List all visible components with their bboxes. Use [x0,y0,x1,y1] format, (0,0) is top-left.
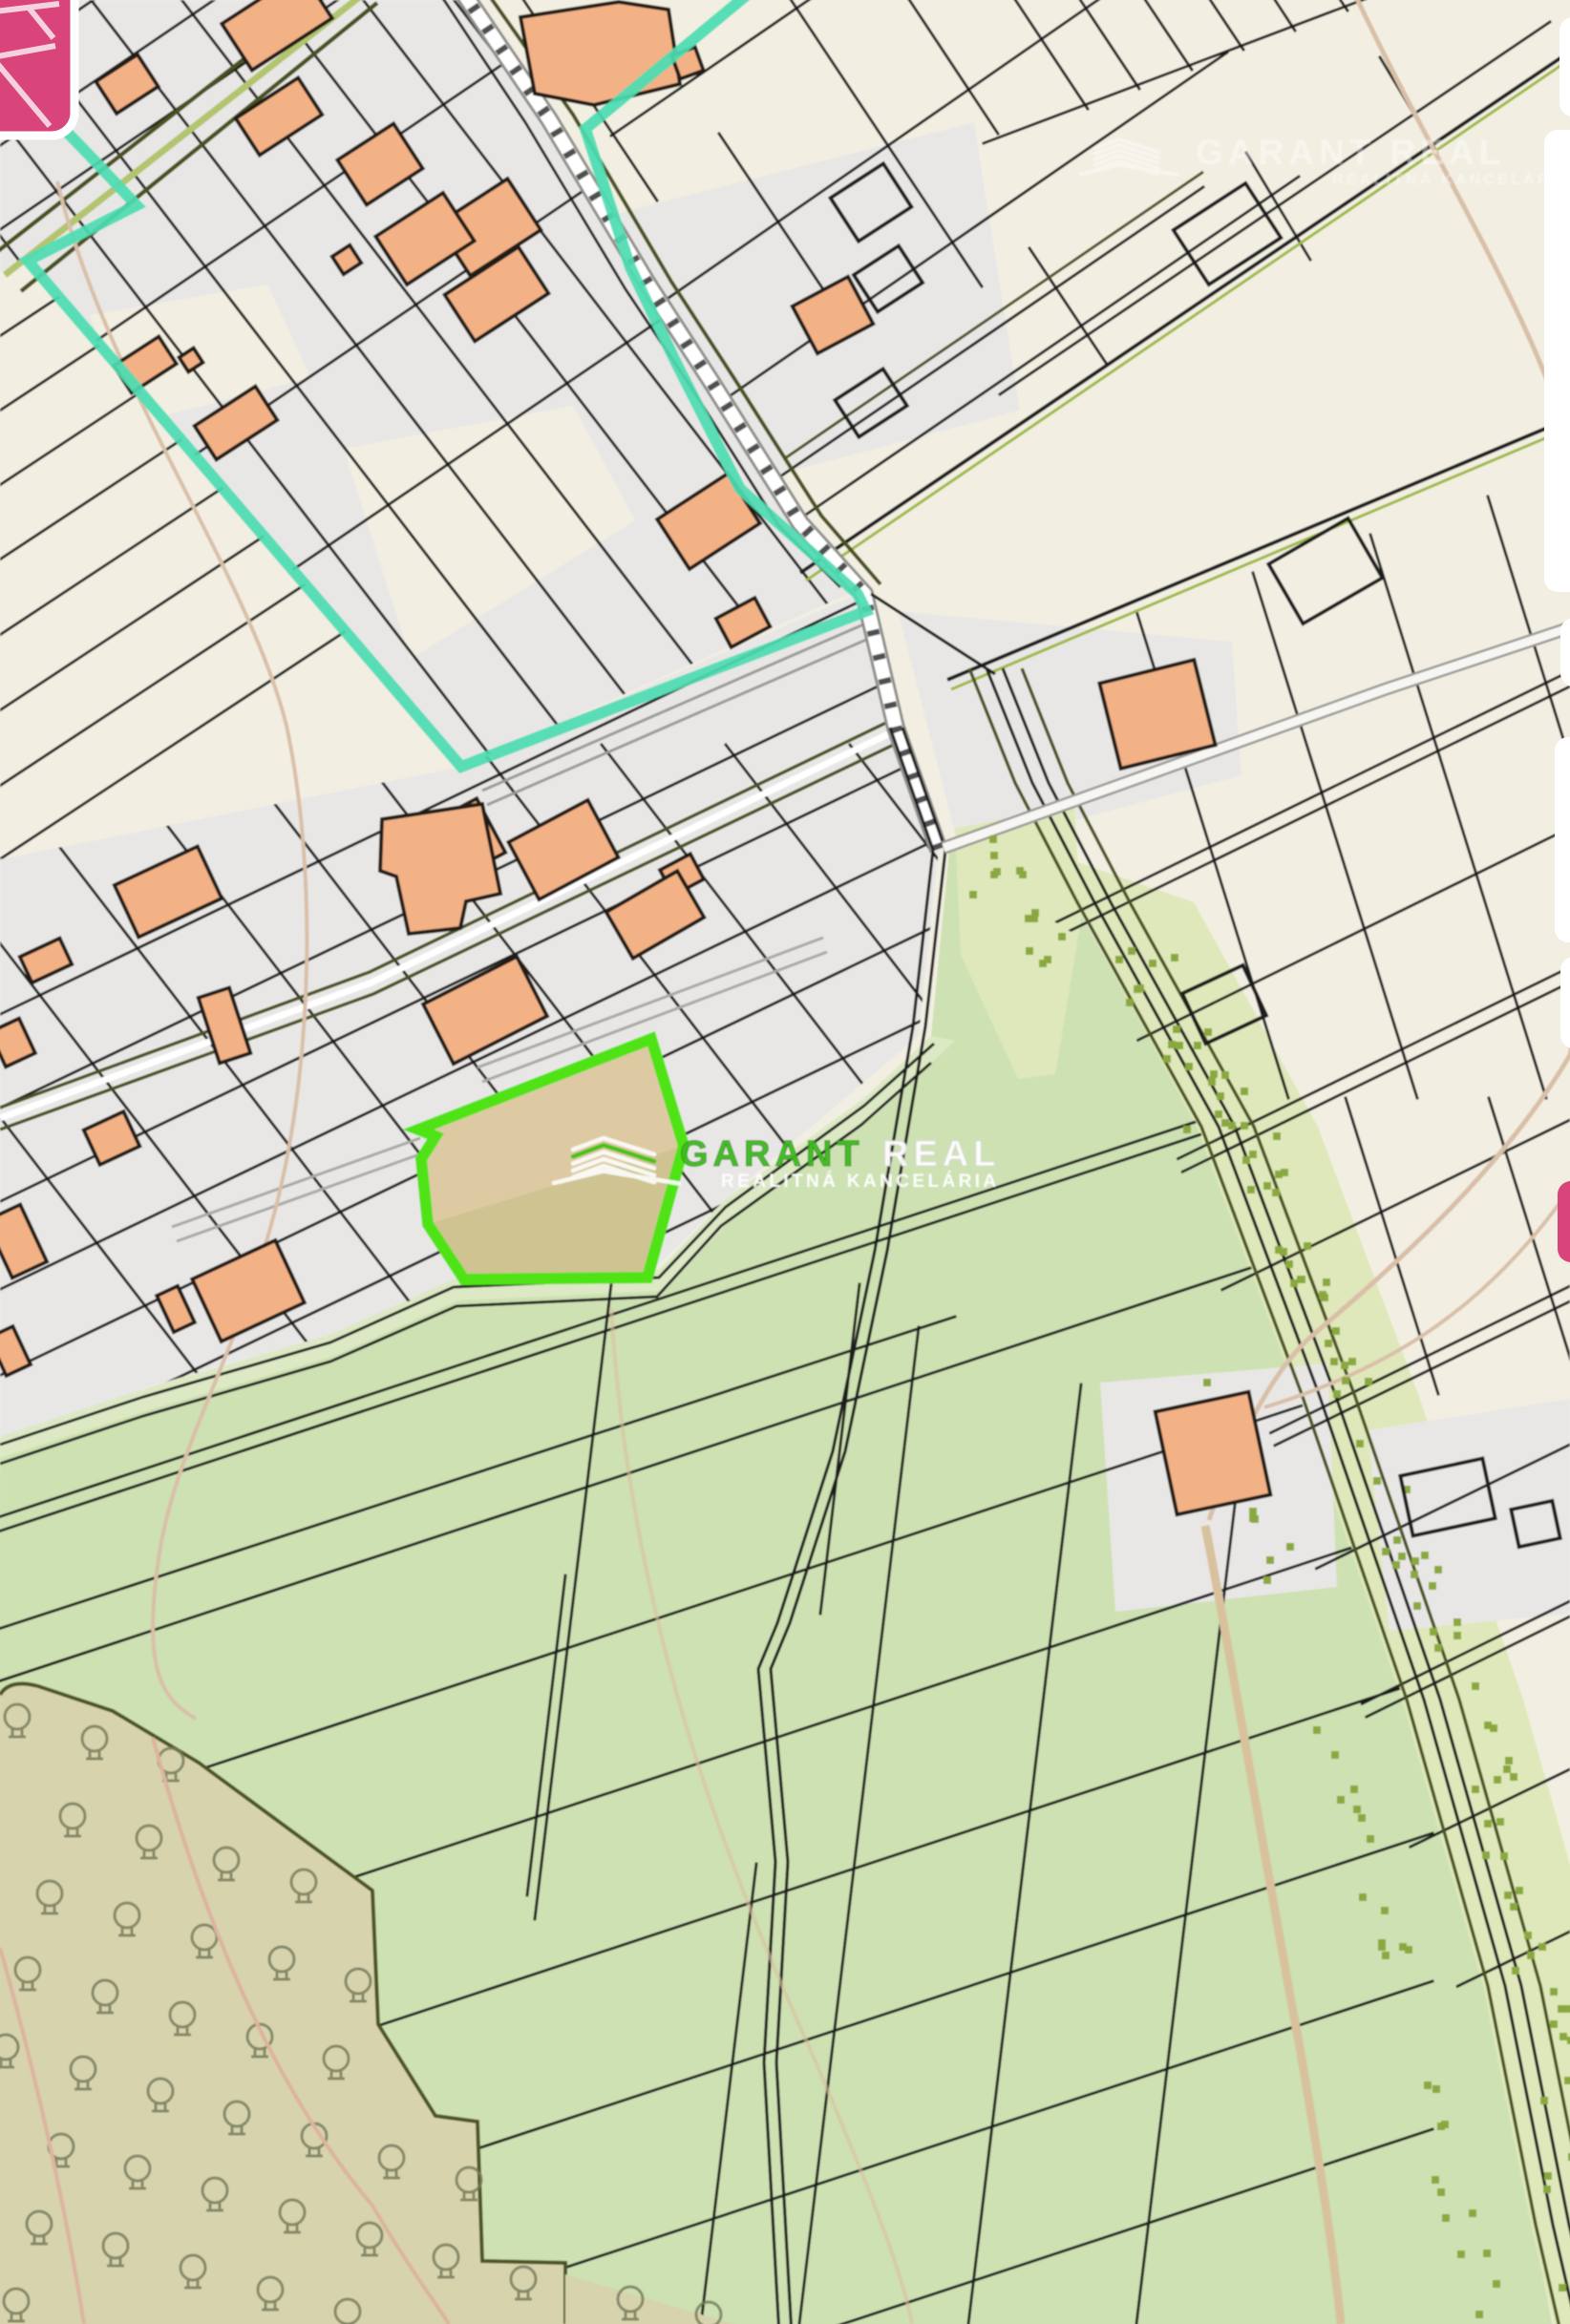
svg-text:REALITNÁ KANCELÁRIA: REALITNÁ KANCELÁRIA [1332,170,1570,188]
svg-text:GARANT REAL: GARANT REAL [1196,133,1505,172]
svg-text:REAL: REAL [882,1134,1000,1174]
svg-text:GARANT: GARANT [680,1134,864,1174]
svg-text:REALITNÁ KANCELÁRIA: REALITNÁ KANCELÁRIA [721,1171,1000,1192]
